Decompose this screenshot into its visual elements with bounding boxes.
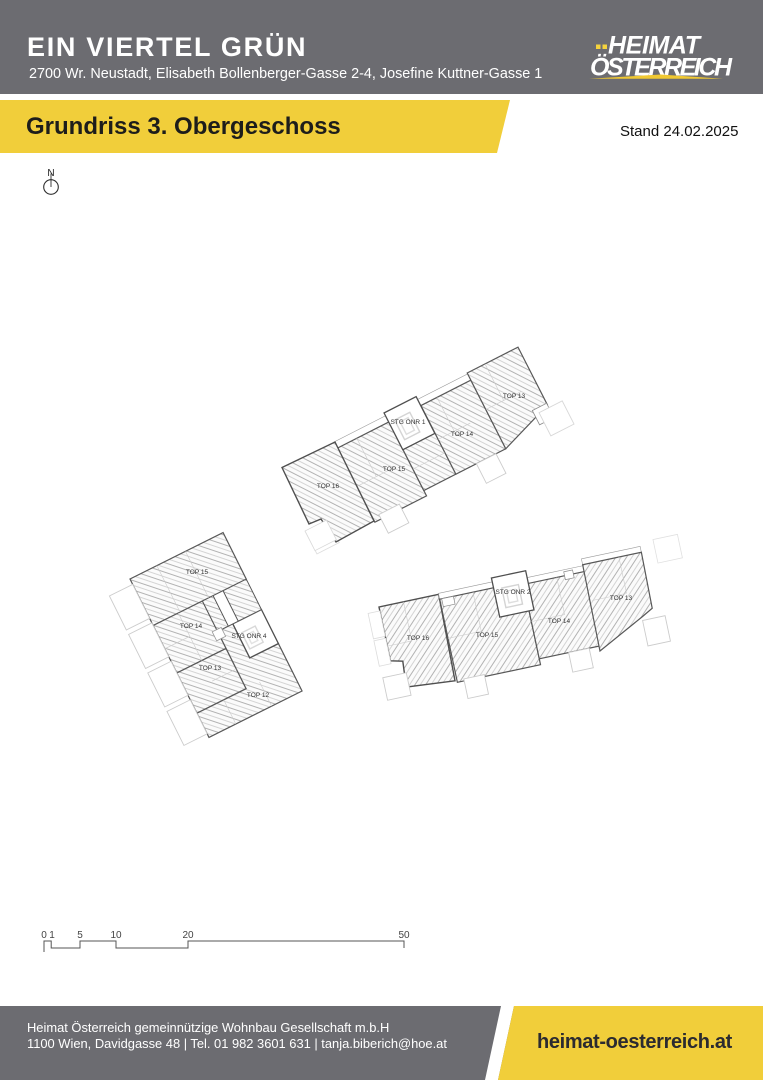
svg-text:N: N <box>47 168 54 179</box>
svg-text:STG ONR 1: STG ONR 1 <box>390 419 425 426</box>
svg-text:10: 10 <box>110 930 122 941</box>
svg-text:TOP 12: TOP 12 <box>247 692 270 699</box>
svg-text:TOP 13: TOP 13 <box>199 665 222 672</box>
svg-text:TOP 13: TOP 13 <box>610 595 633 602</box>
svg-text:TOP 14: TOP 14 <box>548 618 571 625</box>
svg-text:TOP 16: TOP 16 <box>317 483 340 490</box>
svg-text:TOP 14: TOP 14 <box>180 623 203 630</box>
svg-text:STG ONR 2: STG ONR 2 <box>495 589 530 596</box>
svg-text:STG ONR 4: STG ONR 4 <box>231 633 266 640</box>
svg-text:5: 5 <box>77 930 83 941</box>
svg-text:0: 0 <box>41 930 47 941</box>
svg-text:TOP 13: TOP 13 <box>503 393 526 400</box>
svg-text:TOP 15: TOP 15 <box>476 632 499 639</box>
svg-text:TOP 16: TOP 16 <box>407 635 430 642</box>
svg-text:TOP 15: TOP 15 <box>383 466 406 473</box>
svg-text:50: 50 <box>398 930 410 941</box>
svg-text:TOP 14: TOP 14 <box>451 431 474 438</box>
svg-text:TOP 15: TOP 15 <box>186 569 209 576</box>
svg-text:20: 20 <box>182 930 194 941</box>
svg-text:1: 1 <box>49 930 55 941</box>
